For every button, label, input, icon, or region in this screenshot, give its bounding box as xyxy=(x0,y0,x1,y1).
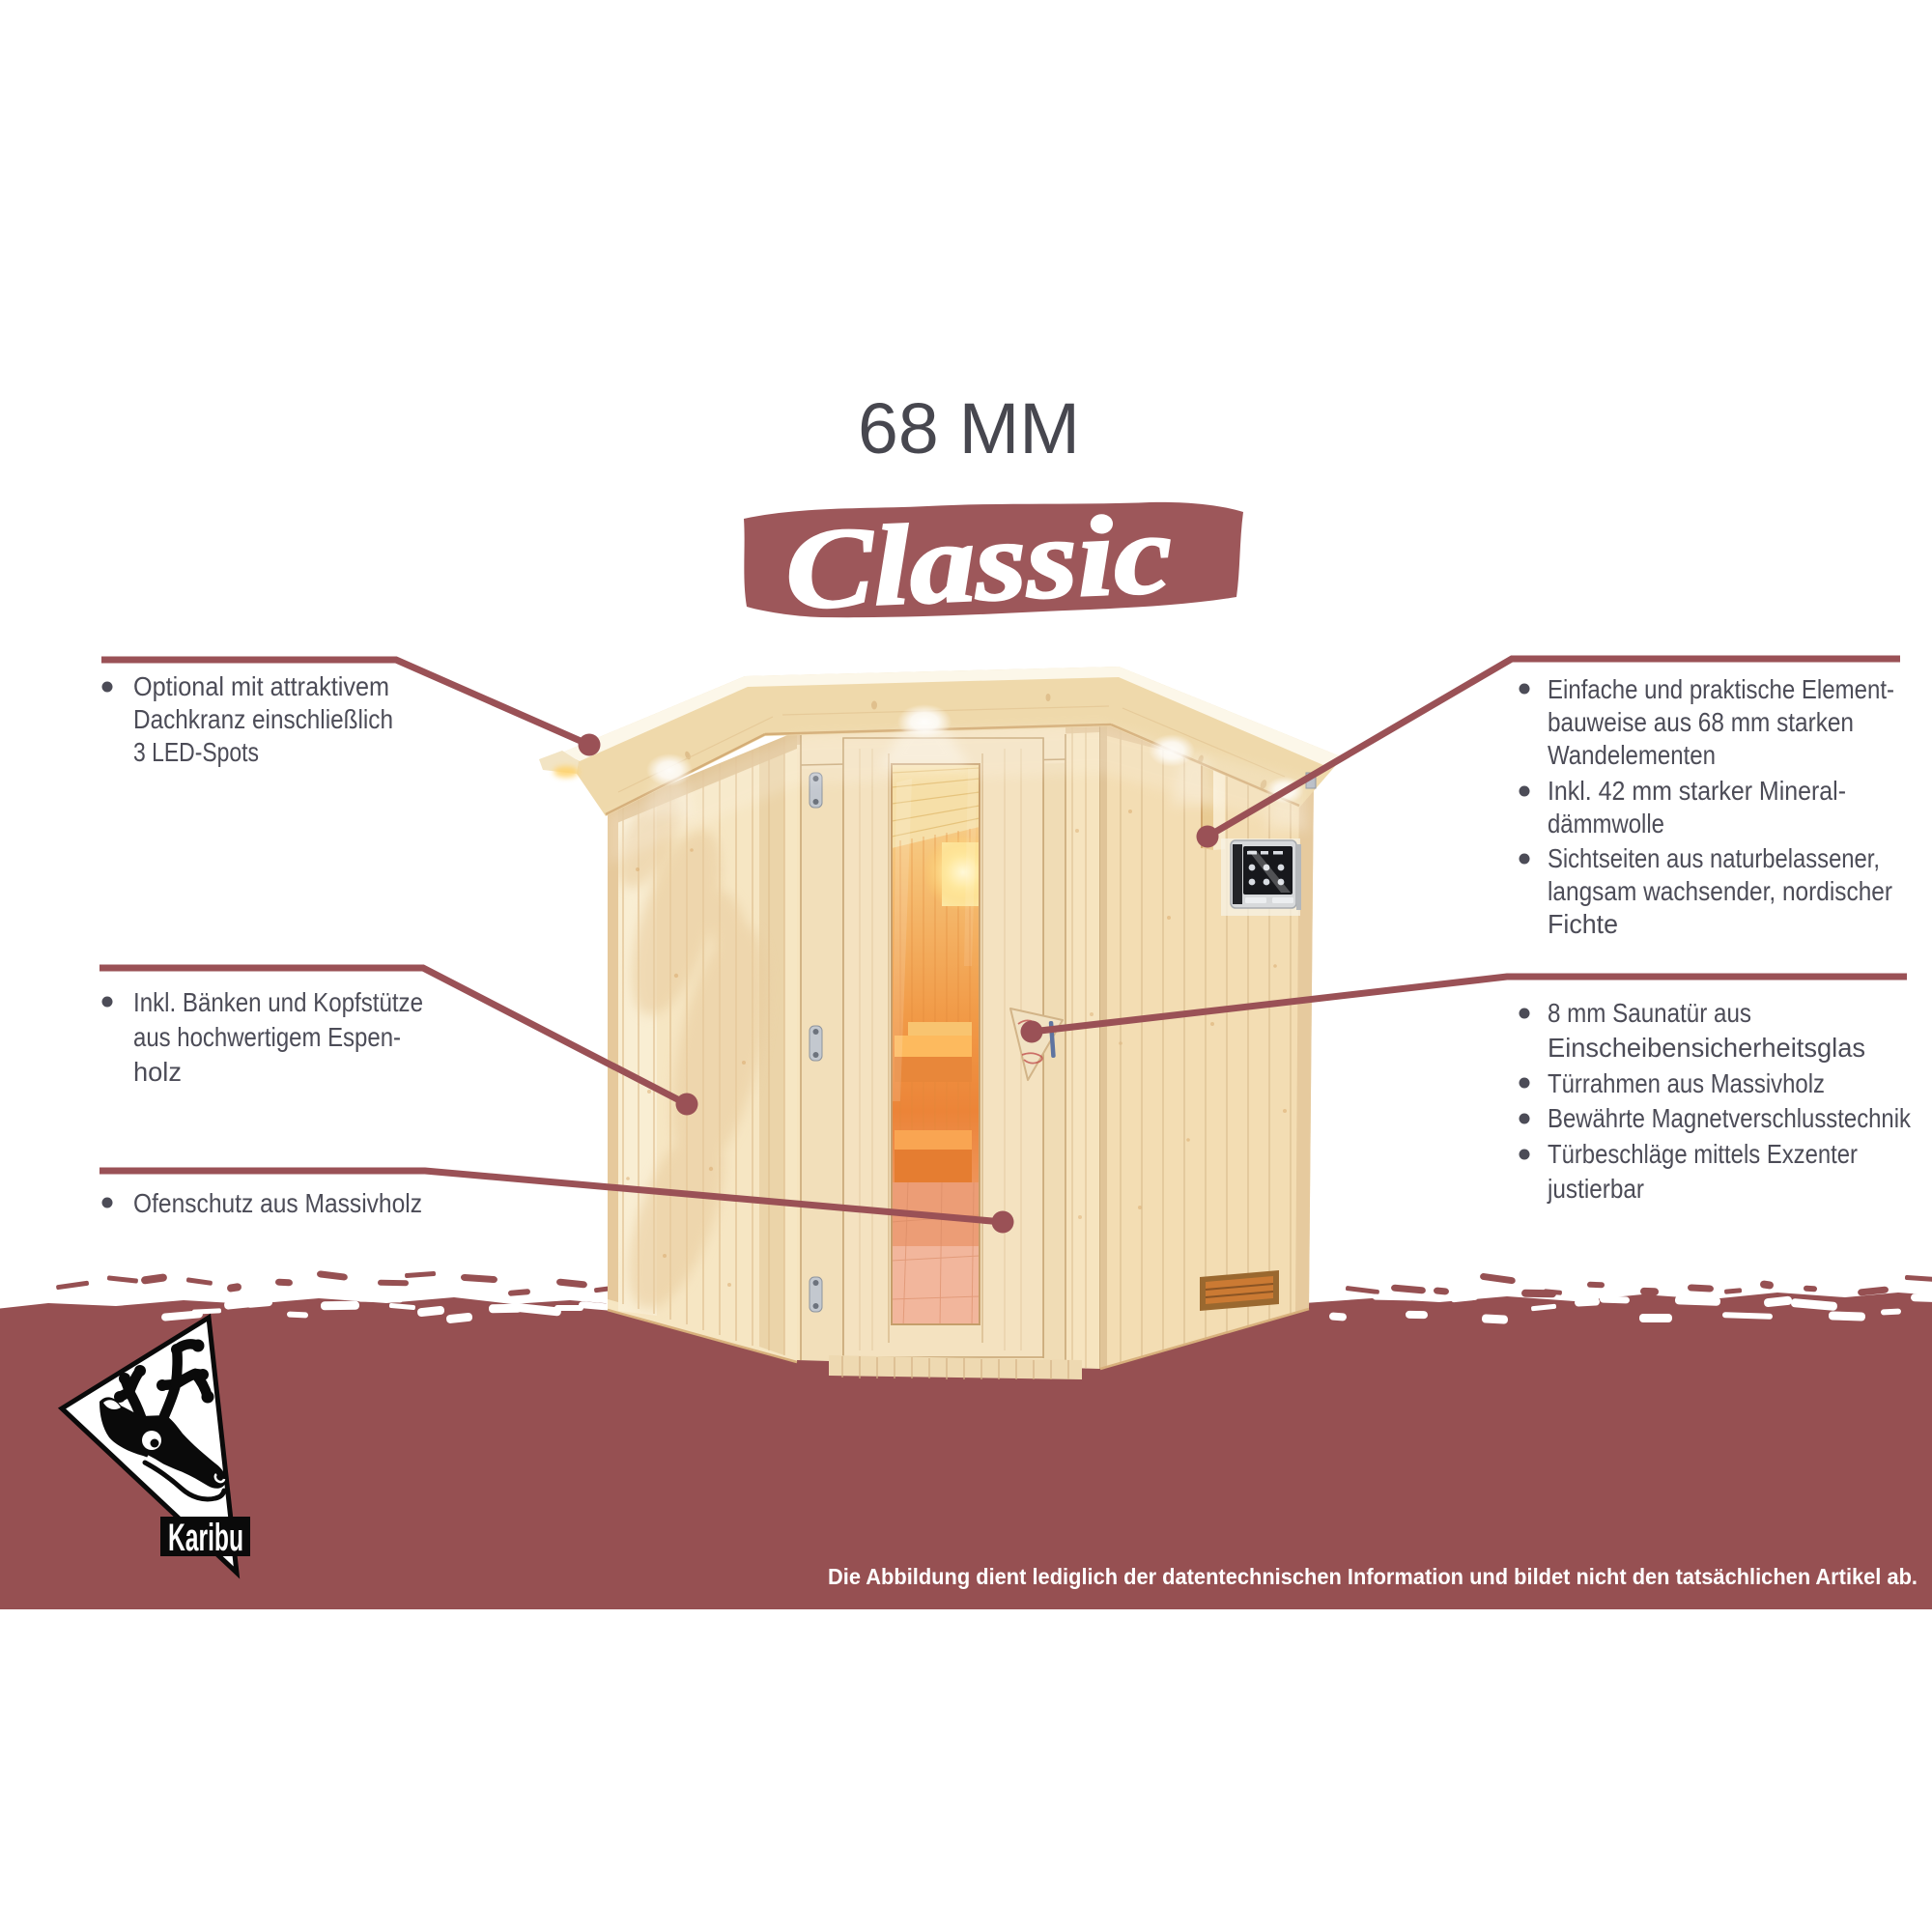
svg-text:Türbeschläge mittels Exzenter: Türbeschläge mittels Exzenter xyxy=(1548,1139,1858,1169)
svg-text:Inkl. 42 mm starker Mineral-: Inkl. 42 mm starker Mineral- xyxy=(1548,776,1846,806)
svg-text:Classic: Classic xyxy=(782,490,1174,633)
svg-text:Karibu: Karibu xyxy=(168,1517,243,1559)
svg-text:3 LED-Spots: 3 LED-Spots xyxy=(133,737,259,767)
svg-text:justierbar: justierbar xyxy=(1547,1174,1644,1204)
svg-text:Ofenschutz aus Massivholz: Ofenschutz aus Massivholz xyxy=(133,1188,422,1218)
svg-text:dämmwolle: dämmwolle xyxy=(1548,809,1664,838)
svg-text:Optional mit attraktivem: Optional mit attraktivem xyxy=(133,671,389,701)
svg-text:Wandelementen: Wandelementen xyxy=(1548,740,1716,770)
svg-text:aus hochwertigem Espen-: aus hochwertigem Espen- xyxy=(133,1022,401,1052)
svg-text:Einfache und praktische Elemen: Einfache und praktische Element- xyxy=(1548,674,1894,704)
svg-text:Inkl. Bänken und Kopfstütze: Inkl. Bänken und Kopfstütze xyxy=(133,987,423,1017)
svg-text:langsam wachsender, nordischer: langsam wachsender, nordischer xyxy=(1548,876,1892,906)
svg-text:Bewährte Magnetverschlusstechn: Bewährte Magnetverschlusstechnik xyxy=(1548,1103,1912,1133)
svg-text:bauweise aus 68 mm starken: bauweise aus 68 mm starken xyxy=(1548,707,1854,737)
svg-text:8 mm Saunatür aus: 8 mm Saunatür aus xyxy=(1548,998,1751,1028)
svg-text:Die Abbildung dient lediglich: Die Abbildung dient lediglich der datent… xyxy=(828,1564,1918,1589)
svg-text:holz: holz xyxy=(133,1057,182,1087)
svg-text:Türrahmen aus Massivholz: Türrahmen aus Massivholz xyxy=(1548,1068,1825,1098)
svg-text:68 MM: 68 MM xyxy=(858,388,1080,469)
svg-text:Sichtseiten aus naturbelassene: Sichtseiten aus naturbelassener, xyxy=(1548,843,1880,873)
svg-text:Fichte: Fichte xyxy=(1548,909,1618,939)
svg-text:Einscheibensicherheitsglas: Einscheibensicherheitsglas xyxy=(1548,1033,1865,1063)
svg-text:Dachkranz einschließlich: Dachkranz einschließlich xyxy=(133,704,393,734)
